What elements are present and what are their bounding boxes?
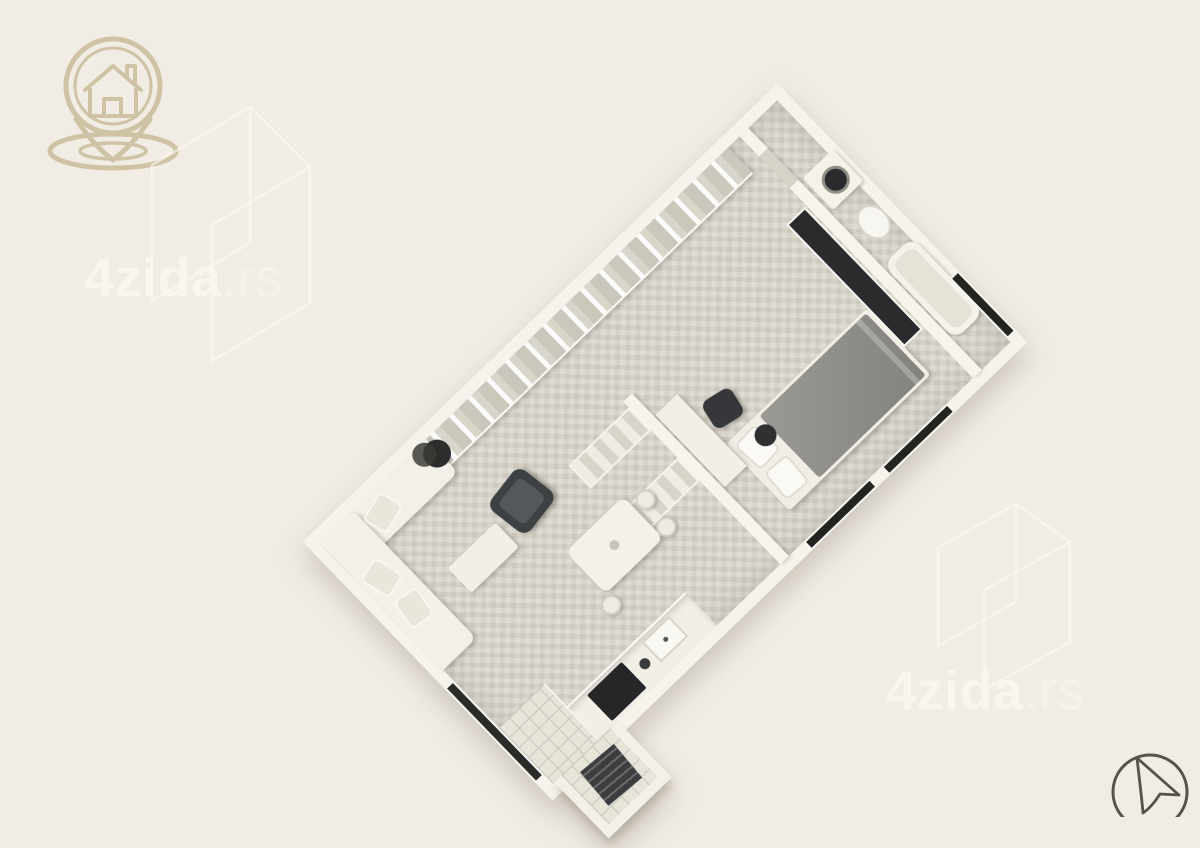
bedroom-window: [803, 478, 878, 551]
watermark-4zida-bottom: 4zida.rs: [886, 660, 1085, 722]
cursor-arrow-icon[interactable]: [1104, 746, 1200, 817]
l-shaped-sofa: [320, 510, 477, 670]
watermark-main: 4zida: [84, 248, 222, 308]
watermark-4zida-top: 4zida.rs: [84, 247, 283, 309]
toilet: [850, 198, 898, 246]
drying-rack: [580, 744, 642, 806]
bedroom-window: [881, 403, 956, 476]
watermark-main: 4zida: [886, 661, 1024, 721]
closet-shelf: [568, 407, 651, 488]
dining-chair: [597, 591, 625, 619]
watermark-suffix: .rs: [222, 248, 284, 308]
watermark-suffix: .rs: [1024, 661, 1086, 721]
bathroom-door-opening: [759, 148, 798, 188]
coffee-table: [448, 522, 519, 592]
